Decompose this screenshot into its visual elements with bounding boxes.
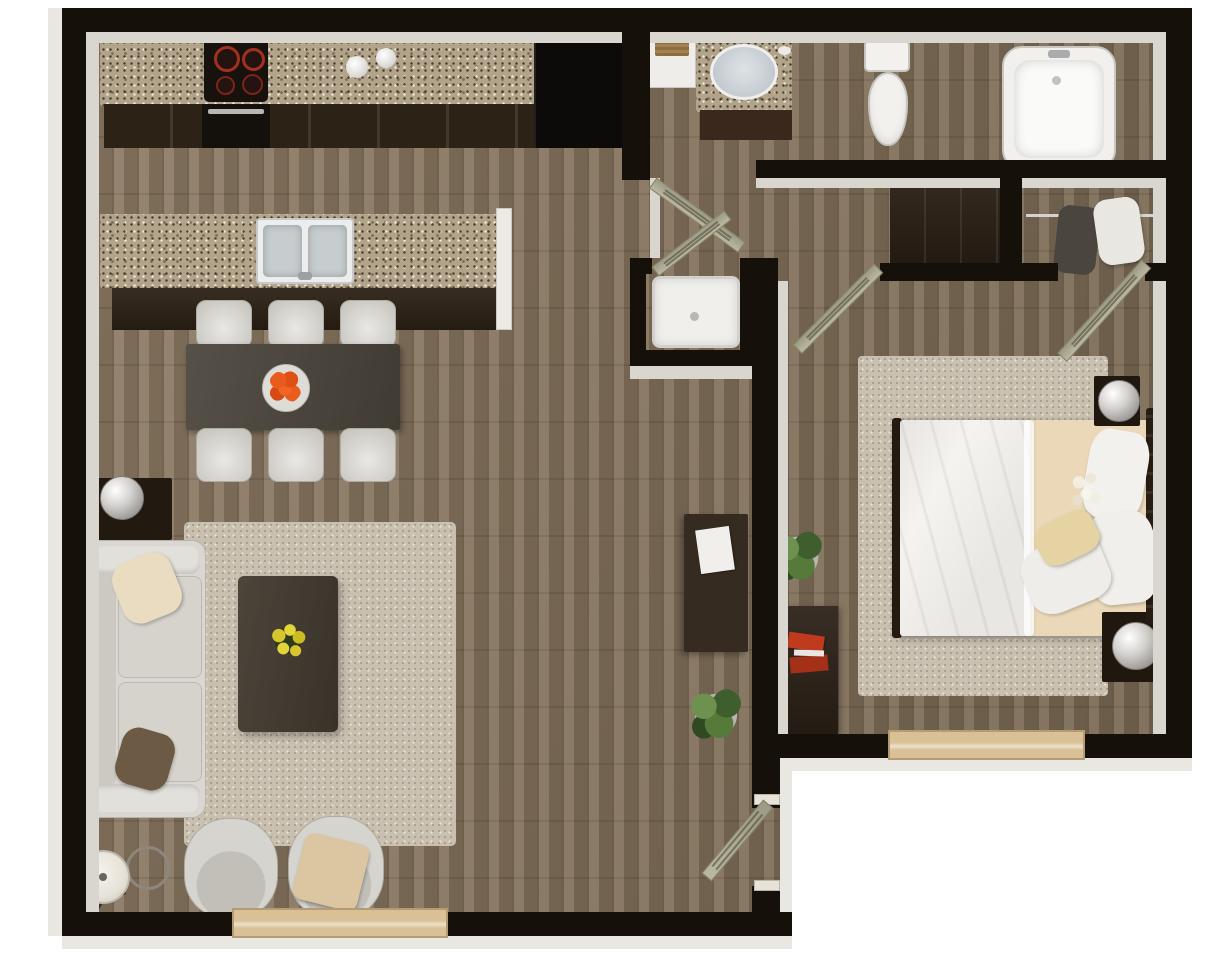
- floor-plan-stage: [0, 0, 1219, 958]
- entry-door-jamb: [754, 880, 780, 891]
- bathtub-basin: [1014, 60, 1104, 158]
- dining-chair: [196, 428, 252, 482]
- duvet: [900, 420, 1030, 636]
- wall-left: [62, 8, 86, 936]
- potted-plant: [686, 686, 746, 744]
- island-end-panel: [496, 208, 512, 330]
- sink-faucet: [298, 272, 312, 280]
- floor-lamp-finial: [99, 873, 107, 881]
- wall-face: [778, 281, 788, 734]
- sink-basin: [308, 225, 347, 277]
- wall-entry-stub-bottom: [752, 886, 780, 936]
- white-book: [794, 649, 824, 656]
- hanging-clothes-light: [1092, 195, 1147, 267]
- bedside-lamp: [1098, 380, 1140, 422]
- dining-chair: [268, 300, 324, 348]
- dining-chair: [340, 428, 396, 482]
- wall-lobby-bottom: [880, 263, 1058, 281]
- living-window: [232, 908, 448, 938]
- outside-area: [0, 0, 1219, 8]
- canister: [376, 48, 396, 68]
- dining-chair: [340, 300, 396, 348]
- red-book: [789, 654, 828, 673]
- wall-divider: [752, 258, 778, 808]
- flower-arrangement: [262, 616, 318, 672]
- vanity-sink: [710, 44, 778, 100]
- shower-drain: [690, 312, 699, 321]
- oven-handle: [208, 109, 264, 114]
- cooktop-burner: [216, 76, 235, 95]
- vanity-base: [700, 110, 792, 140]
- kitchen-cabinets: [104, 104, 536, 148]
- wall-face: [86, 32, 99, 912]
- oranges: [268, 370, 302, 404]
- dining-chair: [268, 428, 324, 482]
- exterior-face: [780, 758, 792, 936]
- wire-sphere-decor: [126, 846, 170, 890]
- outside-area: [780, 758, 1219, 958]
- kitchen-counter: [100, 32, 536, 106]
- bedroom-window: [888, 730, 1085, 760]
- cooktop-burner: [242, 74, 263, 95]
- tub-faucet: [1048, 50, 1070, 58]
- dining-chair: [196, 300, 252, 348]
- tub-drain: [1052, 76, 1061, 85]
- cooktop-burner: [214, 46, 240, 72]
- wall-face: [1153, 43, 1166, 758]
- soap-dish: [778, 46, 791, 55]
- wall-face: [630, 366, 762, 379]
- wall-right: [1166, 8, 1192, 758]
- wall-bathroom-left: [622, 8, 650, 180]
- cooktop-burner: [242, 48, 265, 71]
- exterior-face: [48, 8, 62, 936]
- wall-face: [756, 178, 1192, 188]
- accent-chair: [184, 818, 278, 918]
- toilet-tank: [864, 40, 910, 72]
- sink-basin: [263, 225, 302, 277]
- canister: [346, 56, 368, 78]
- table-lamp: [100, 476, 144, 520]
- desk-paper: [695, 526, 735, 574]
- wall-bathroom-south: [756, 160, 1192, 178]
- bed-decor-branch: [1062, 462, 1110, 520]
- wall-closet-left: [1000, 178, 1022, 263]
